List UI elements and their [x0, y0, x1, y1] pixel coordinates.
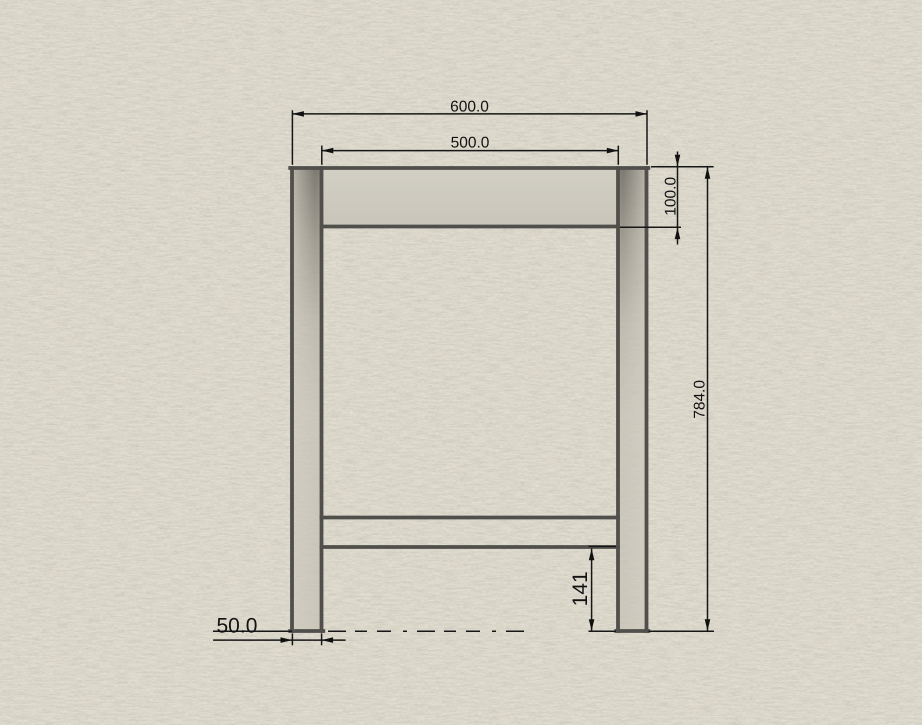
svg-text:500.0: 500.0: [451, 134, 490, 151]
svg-text:141: 141: [569, 571, 592, 606]
svg-text:600.0: 600.0: [450, 98, 489, 115]
svg-text:50.0: 50.0: [217, 614, 258, 637]
svg-text:100.0: 100.0: [662, 177, 679, 216]
svg-text:784.0: 784.0: [692, 380, 709, 419]
